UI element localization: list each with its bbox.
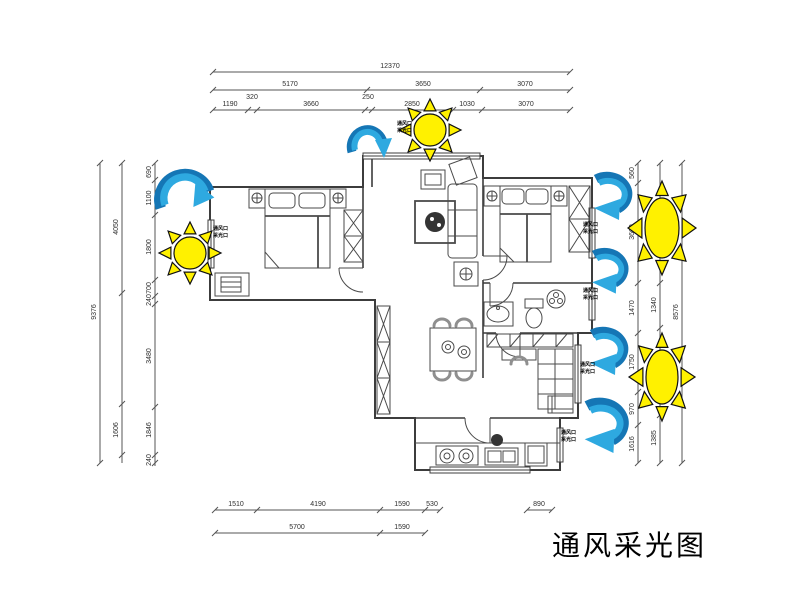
dim-label: 890	[533, 501, 545, 508]
sun-ray	[681, 368, 695, 386]
sun-ray	[184, 272, 196, 284]
dim-label: 1340	[651, 297, 658, 313]
dim-label: 1846	[146, 422, 153, 438]
sun-disc	[645, 198, 679, 258]
flow-annotation: 通风口采光口	[561, 430, 576, 444]
dim-label: 5170	[282, 81, 298, 88]
sun-left	[159, 222, 221, 284]
dim-label: 2850	[404, 101, 420, 108]
wind-arrow-right-4	[585, 403, 624, 453]
pot	[491, 434, 503, 446]
dim-label: 240	[146, 454, 153, 466]
sun-disc	[174, 237, 206, 269]
plant	[425, 212, 445, 232]
sun-ray	[424, 99, 436, 111]
dim-label: 3650	[415, 81, 431, 88]
dim-label: 560	[629, 167, 636, 179]
dim-label: 8576	[673, 304, 680, 320]
drawing-title: 通风采光图	[552, 524, 707, 564]
sun-ray	[656, 181, 668, 196]
sun-ray	[449, 124, 461, 136]
floorplan-drawing: 1237051703650307011903203660250285010303…	[0, 0, 800, 600]
dim-label: 1510	[228, 501, 244, 508]
dim-label: 1030	[459, 101, 475, 108]
sun-right-lower	[629, 333, 695, 421]
dim-label: 9376	[91, 304, 98, 320]
sun-ray	[656, 333, 668, 347]
dim-label: 1616	[629, 436, 636, 452]
apartment-walls	[210, 156, 592, 470]
dim-label: 1100	[146, 190, 153, 205]
wind-arrow-left	[159, 174, 214, 208]
sun-disc	[646, 350, 678, 404]
dim-label: 530	[426, 501, 438, 508]
dim-label: 690	[146, 166, 153, 178]
dim-label: 1470	[629, 300, 636, 316]
flow-annotation: 通风口采光口	[583, 288, 598, 302]
flow-annotation: 通风口采光口	[397, 121, 412, 135]
dim-label: 3660	[303, 101, 319, 108]
dim-label: 3070	[518, 101, 534, 108]
sun-disc	[414, 114, 446, 146]
dim-label: 3480	[146, 348, 153, 364]
flow-annotation: 通风口采光口	[213, 226, 228, 240]
dim-label: 5700	[289, 524, 305, 531]
dim-label: 1606	[113, 422, 120, 438]
dim-label: 700	[146, 282, 153, 294]
dim-label: 1800	[146, 239, 153, 255]
dim-label: 320	[246, 94, 258, 101]
sun-ray	[656, 261, 668, 276]
wind-arrow-right-1	[594, 176, 628, 220]
dim-label: 4190	[310, 501, 326, 508]
dim-label: 4050	[113, 219, 120, 235]
floorplan-canvas: 1237051703650307011903203660250285010303…	[0, 0, 800, 600]
sun-right-upper	[628, 181, 696, 275]
sun-ray	[682, 218, 696, 238]
dim-label: 3070	[517, 81, 533, 88]
dim-label: 12370	[380, 63, 400, 70]
dim-label: 1750	[629, 354, 636, 370]
flow-annotation: 通风口采光口	[580, 362, 595, 376]
sun-ray	[656, 407, 668, 421]
dim-label: 240	[146, 294, 153, 306]
dim-label: 1190	[222, 101, 237, 108]
wind-arrow-right-3	[590, 331, 624, 375]
dim-label: 970	[629, 403, 636, 415]
dim-label: 1590	[394, 524, 410, 531]
dim-label: 250	[362, 94, 374, 101]
sun-ray	[159, 247, 171, 259]
flow-annotation: 通风口采光口	[583, 222, 598, 236]
sun-ray	[184, 222, 196, 234]
dim-label: 1590	[394, 501, 410, 508]
dim-label: 1385	[651, 430, 658, 446]
